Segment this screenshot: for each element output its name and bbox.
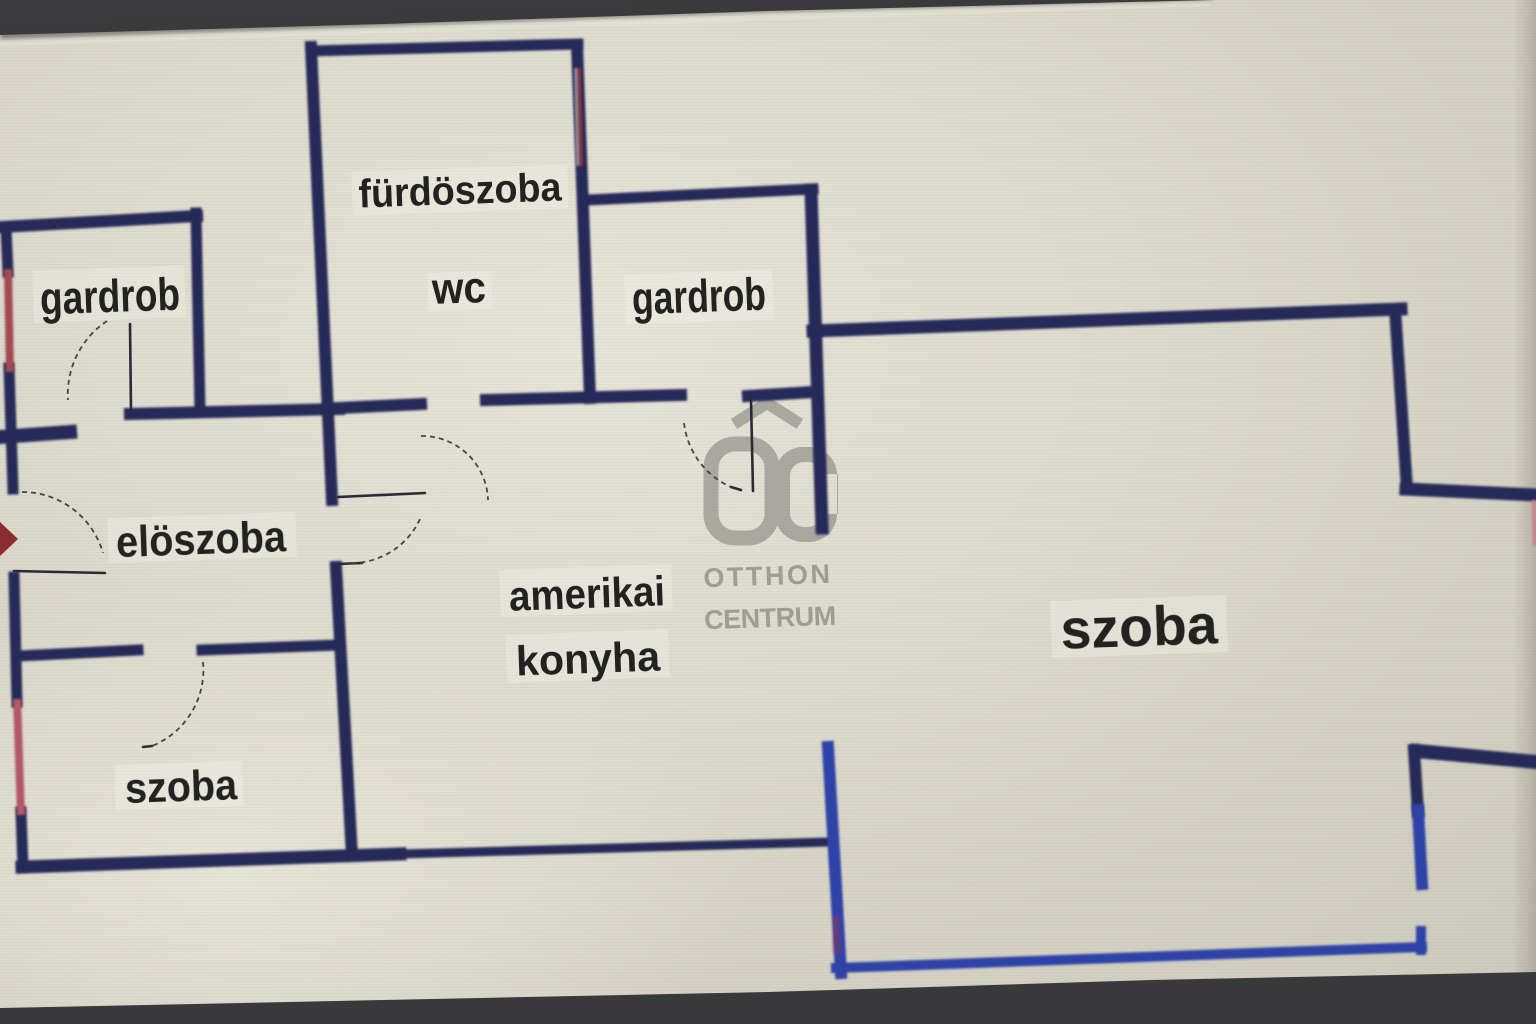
svg-text:szoba: szoba bbox=[1059, 592, 1219, 660]
svg-text:fürdöszoba: fürdöszoba bbox=[358, 165, 563, 216]
svg-text:OTTHON: OTTHON bbox=[703, 559, 833, 593]
svg-text:CENTRUM: CENTRUM bbox=[704, 601, 836, 636]
svg-text:amerikai: amerikai bbox=[508, 567, 666, 619]
svg-text:gardrob: gardrob bbox=[631, 268, 767, 325]
svg-text:wc: wc bbox=[430, 263, 487, 314]
svg-text:elöszoba: elöszoba bbox=[115, 512, 287, 567]
svg-text:gardrob: gardrob bbox=[39, 268, 181, 325]
svg-text:szoba: szoba bbox=[124, 761, 239, 813]
svg-text:konyha: konyha bbox=[515, 632, 661, 684]
